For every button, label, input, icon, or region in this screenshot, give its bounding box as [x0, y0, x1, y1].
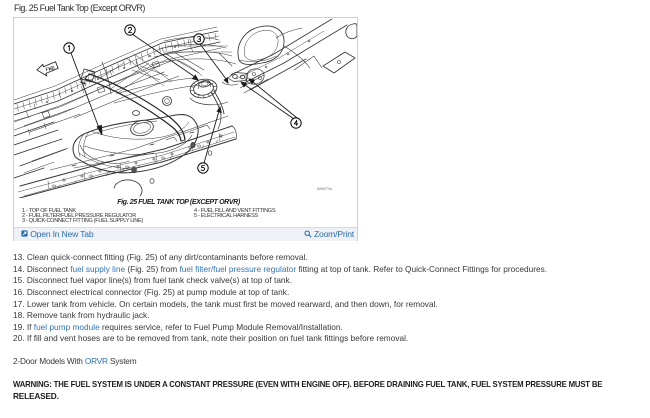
svg-text:80f6079a: 80f6079a	[317, 187, 332, 191]
